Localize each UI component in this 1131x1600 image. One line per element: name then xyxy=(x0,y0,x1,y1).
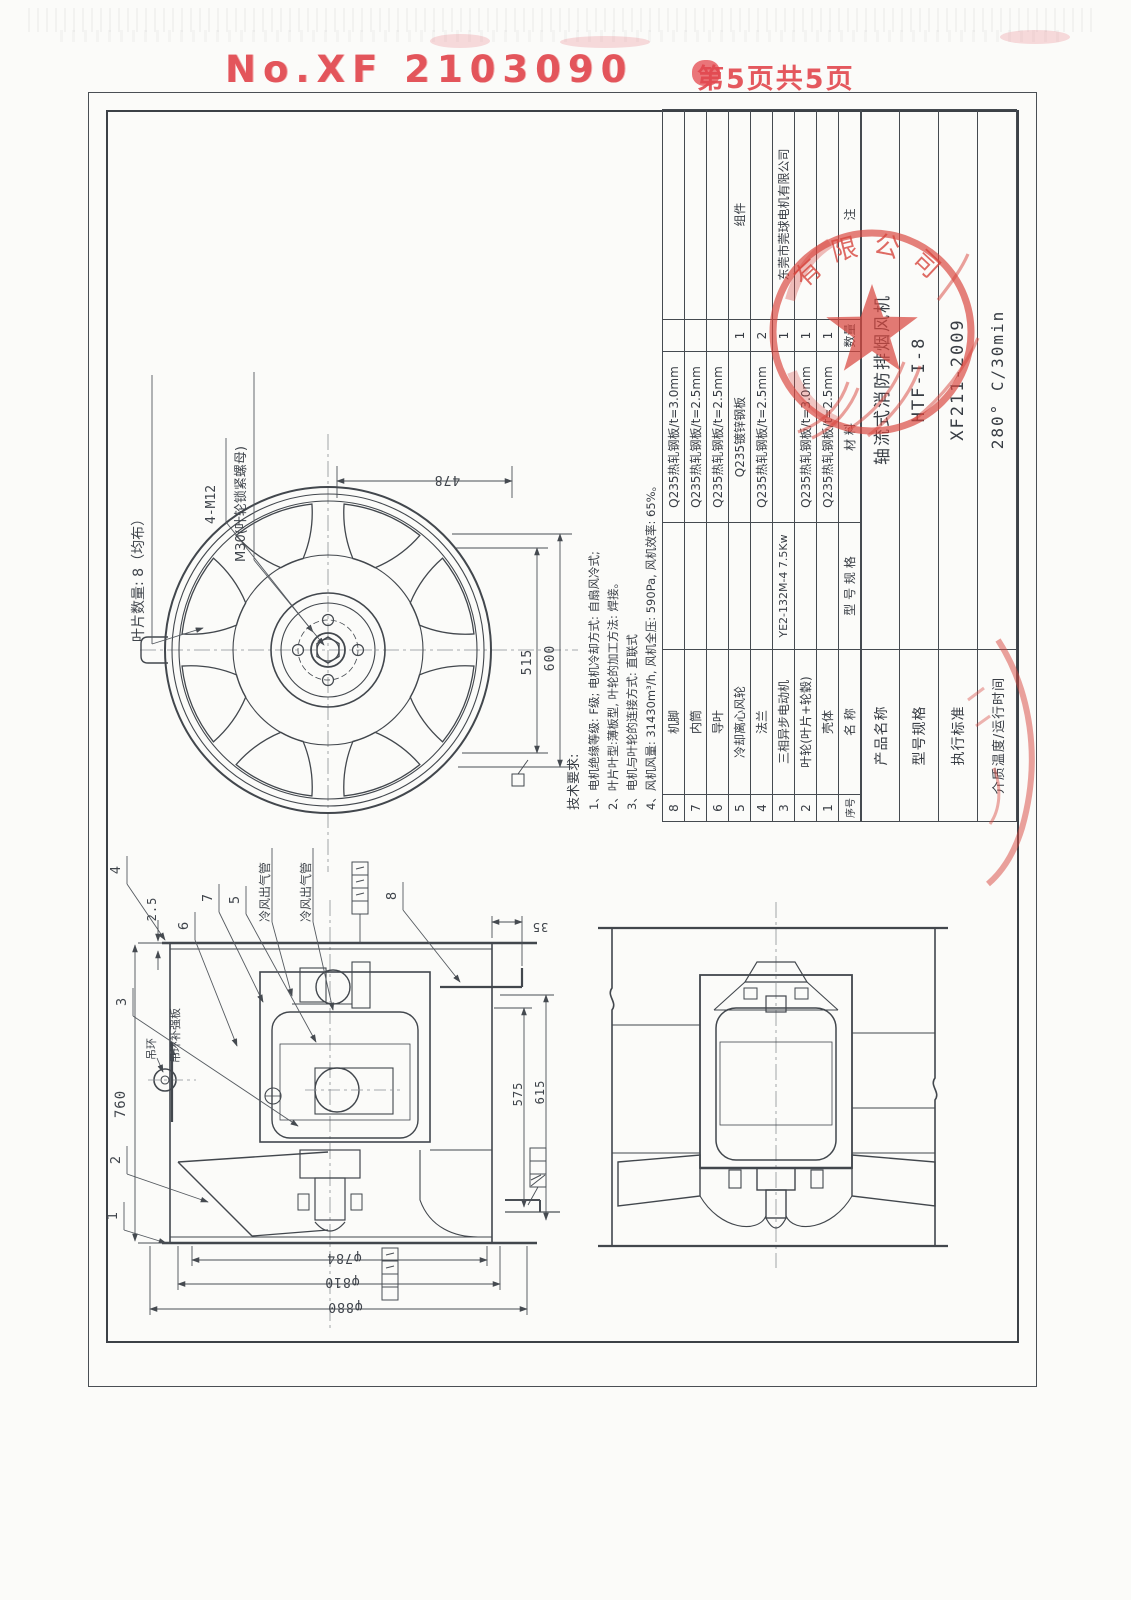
cell-spec xyxy=(817,523,839,650)
cell-no: 7 xyxy=(685,795,707,822)
cell-no: 4 xyxy=(751,795,773,822)
dim-35: 35 xyxy=(524,918,556,933)
cell-spec xyxy=(707,523,729,650)
callout-4: 4 xyxy=(110,858,126,882)
cell-name: 叶轮(叶片+轮毂) xyxy=(795,650,817,795)
table-row: 5 冷却离心风轮 Q235镀锌钢板 1 组件 xyxy=(729,110,751,822)
cell-spec xyxy=(729,523,751,650)
title-block-row: 介质温度/运行时间 280° C/30min xyxy=(978,110,1017,822)
table-row: 4 法兰 Q235热轧钢板/t=2.5mm 2 xyxy=(751,110,773,822)
cell-no: 1 xyxy=(817,795,839,822)
cell-material: Q235热轧钢板/t=3.0mm xyxy=(795,352,817,523)
callout-3: 3 xyxy=(116,990,132,1014)
tech-req-item-2: 2、叶片叶型:薄板型, 叶轮的加工方法: 焊接。 xyxy=(604,455,623,810)
cell-name: 冷却离心风轮 xyxy=(729,650,751,795)
cell-qty: 2 xyxy=(751,320,773,352)
header-spec: 型 号 规 格 xyxy=(839,523,861,650)
dim-478: 478 xyxy=(425,470,469,486)
title-block: 产品名称 轴流式消防排烟风机 型号规格 HTF-I-8 执行标准 XF211-2… xyxy=(861,109,1017,822)
technical-requirements: 技术要求: 1、电机绝缘等级: F级; 电机冷却方式: 自扇风冷式; 2、叶片叶… xyxy=(565,455,661,810)
cell-note xyxy=(685,110,707,320)
weld-symbol-stack xyxy=(528,1148,546,1205)
dim-515: 515 xyxy=(521,643,537,681)
cell-material xyxy=(773,352,795,523)
cell-spec xyxy=(685,523,707,650)
cell-no: 5 xyxy=(729,795,751,822)
cell-name: 机脚 xyxy=(663,650,685,795)
cell-no: 3 xyxy=(773,795,795,822)
table-row: 3 三相异步电动机 YE2-132M-4 7.5Kw 1 东莞市莞球电机有限公司 xyxy=(773,110,795,822)
cell-note: 组件 xyxy=(729,110,751,320)
dim-600: 600 xyxy=(544,639,560,677)
dim-phi810: φ810 xyxy=(321,1273,363,1288)
cell-material: Q235镀锌钢板 xyxy=(729,352,751,523)
header-note: 注 xyxy=(839,110,861,320)
title-block-row: 执行标准 XF211-2009 xyxy=(939,110,978,822)
cell-note: 东莞市莞球电机有限公司 xyxy=(773,110,795,320)
cell-name: 内筒 xyxy=(685,650,707,795)
dim-760: 760 xyxy=(114,1080,131,1128)
cell-material: Q235热轧钢板/t=2.5mm xyxy=(685,352,707,523)
table-row: 1 壳体 Q235热轧钢板/t=2.5mm 1 xyxy=(817,110,839,822)
standard-value: XF211-2009 xyxy=(939,110,978,650)
lifting-ring-label: 吊环 xyxy=(143,1024,157,1060)
dim-2-5: 2.5 xyxy=(146,893,161,925)
parts-table: 8 机脚 Q235热轧钢板/t=3.0mm 7 内筒 Q235热轧钢板/t=2.… xyxy=(662,109,861,822)
model-spec-label: 型号规格 xyxy=(900,650,939,822)
cell-qty xyxy=(707,320,729,352)
scanned-drawing-sheet: No.XF 2103090 第5页共5页 xyxy=(0,0,1131,1600)
cell-no: 6 xyxy=(707,795,729,822)
cell-name: 壳体 xyxy=(817,650,839,795)
title-block-row: 型号规格 HTF-I-8 xyxy=(900,110,939,822)
left-section-view xyxy=(148,900,537,1332)
cell-qty: 1 xyxy=(795,320,817,352)
cell-name: 三相异步电动机 xyxy=(773,650,795,795)
standard-label: 执行标准 xyxy=(939,650,978,822)
cell-qty: 1 xyxy=(729,320,751,352)
model-spec-value: HTF-I-8 xyxy=(900,110,939,650)
blade-count-label: 叶片数量: 8（均布） xyxy=(128,373,152,642)
table-row: 2 叶轮(叶片+轮毂) Q235热轧钢板/t=3.0mm 1 xyxy=(795,110,817,822)
cell-note xyxy=(751,110,773,320)
title-block-row: 产品名称 轴流式消防排烟风机 xyxy=(862,110,900,822)
cell-qty xyxy=(685,320,707,352)
bom-and-title-block: 8 机脚 Q235热轧钢板/t=3.0mm 7 内筒 Q235热轧钢板/t=2.… xyxy=(662,110,1015,822)
dim-615: 615 xyxy=(534,1076,549,1108)
cell-note xyxy=(663,110,685,320)
callout-2: 2 xyxy=(110,1148,126,1172)
document-number-stamp: No.XF 2103090 xyxy=(225,48,633,91)
cell-name: 法兰 xyxy=(751,650,773,795)
cold-air-outlet-pipe-label-b: 冷风出气管 xyxy=(297,848,313,922)
front-view-dimensions xyxy=(337,466,572,767)
cell-no: 8 xyxy=(663,795,685,822)
right-section-view xyxy=(598,902,948,1268)
product-name-label: 产品名称 xyxy=(862,650,900,822)
cell-material: Q235热轧钢板/t=2.5mm xyxy=(751,352,773,523)
header-qty: 数量 xyxy=(839,320,861,352)
cell-qty: 1 xyxy=(773,320,795,352)
table-row: 8 机脚 Q235热轧钢板/t=3.0mm xyxy=(663,110,685,822)
cell-spec: YE2-132M-4 7.5Kw xyxy=(773,523,795,650)
weld-symbol-stack xyxy=(352,862,368,943)
weld-symbol-stack xyxy=(382,1248,398,1300)
tech-req-item-3: 3、电机与叶轮的连接方式: 直联式 xyxy=(623,455,642,810)
cell-material: Q235热轧钢板/t=3.0mm xyxy=(663,352,685,523)
lifting-ring-plate-label: 吊环补强板 xyxy=(167,989,181,1063)
header-no: 序号 xyxy=(839,795,861,822)
cold-air-outlet-pipe-label-a: 冷风出气管 xyxy=(256,848,272,922)
table-row: 7 内筒 Q235热轧钢板/t=2.5mm xyxy=(685,110,707,822)
tech-req-item-4: 4、风机风量: 31430m³/h, 风机全压: 590Pa, 风机效率: 65… xyxy=(642,455,661,810)
cell-note xyxy=(817,110,839,320)
product-name-value: 轴流式消防排烟风机 xyxy=(862,110,900,650)
callout-1: 1 xyxy=(107,1204,123,1228)
tech-req-item-1: 1、电机绝缘等级: F级; 电机冷却方式: 自扇风冷式; xyxy=(585,455,604,810)
cell-material: Q235热轧钢板/t=2.5mm xyxy=(707,352,729,523)
header-material: 材 料 xyxy=(839,352,861,523)
callout-5: 5 xyxy=(229,888,245,912)
callout-7: 7 xyxy=(202,886,218,910)
cell-spec xyxy=(795,523,817,650)
cell-note xyxy=(795,110,817,320)
temp-time-value: 280° C/30min xyxy=(978,110,1017,650)
table-row: 6 导叶 Q235热轧钢板/t=2.5mm xyxy=(707,110,729,822)
cell-qty xyxy=(663,320,685,352)
lock-nut-label: M30(叶轮锁紧螺母) xyxy=(230,370,254,562)
header-name: 名 称 xyxy=(839,650,861,795)
bolt-spec-label: 4-M12 xyxy=(204,436,226,524)
cell-spec xyxy=(751,523,773,650)
cell-no: 2 xyxy=(795,795,817,822)
table-header-row: 序号 名 称 型 号 规 格 材 料 数量 注 xyxy=(839,110,861,822)
page-number-stamp: 第5页共5页 xyxy=(697,57,855,96)
temp-time-label: 介质温度/运行时间 xyxy=(978,650,1017,822)
cell-material: Q235热轧钢板/t=2.5mm xyxy=(817,352,839,523)
dim-575: 575 xyxy=(512,1078,527,1110)
cell-name: 导叶 xyxy=(707,650,729,795)
cell-note xyxy=(707,110,729,320)
callout-8: 8 xyxy=(386,884,402,908)
dim-phi784: φ784 xyxy=(323,1249,365,1264)
cell-spec xyxy=(663,523,685,650)
cell-qty: 1 xyxy=(817,320,839,352)
tech-req-title: 技术要求: xyxy=(565,455,584,810)
callout-6: 6 xyxy=(178,914,194,938)
dim-phi880: φ880 xyxy=(323,1297,367,1313)
